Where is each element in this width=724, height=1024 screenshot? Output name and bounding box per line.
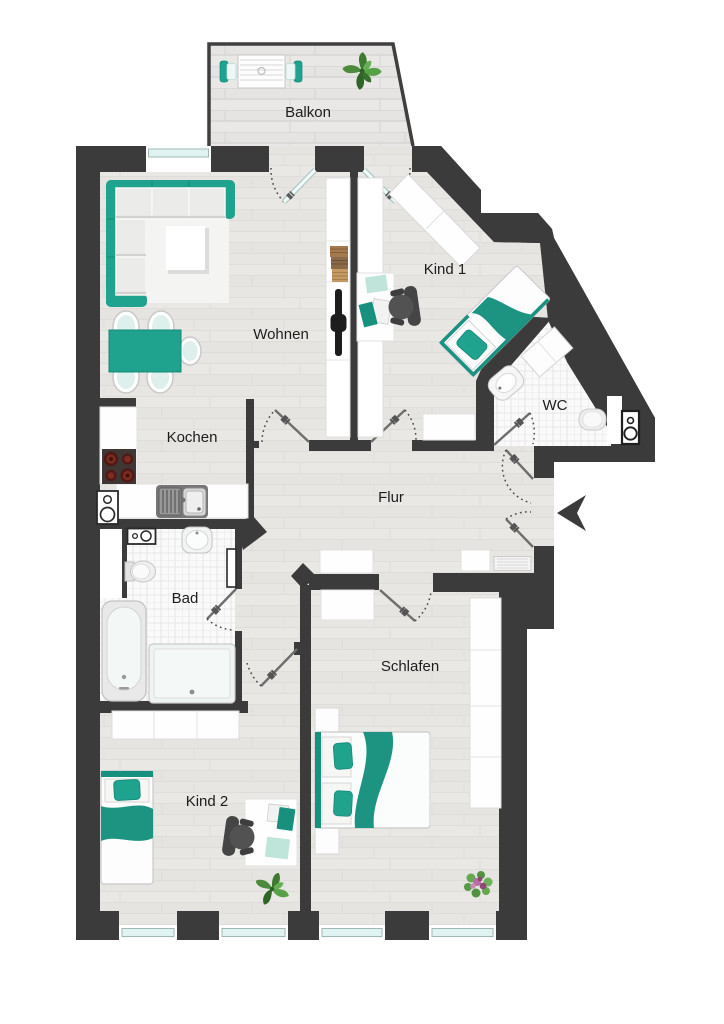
svg-text:Kind 1: Kind 1 bbox=[424, 261, 467, 278]
svg-text:Balkon: Balkon bbox=[285, 104, 331, 121]
svg-text:WC: WC bbox=[543, 397, 568, 414]
svg-text:Flur: Flur bbox=[378, 489, 404, 506]
svg-text:Kind 2: Kind 2 bbox=[186, 793, 229, 810]
svg-text:Wohnen: Wohnen bbox=[253, 326, 309, 343]
svg-text:Kochen: Kochen bbox=[167, 429, 218, 446]
svg-text:Schlafen: Schlafen bbox=[381, 658, 439, 675]
svg-text:Bad: Bad bbox=[172, 590, 199, 607]
